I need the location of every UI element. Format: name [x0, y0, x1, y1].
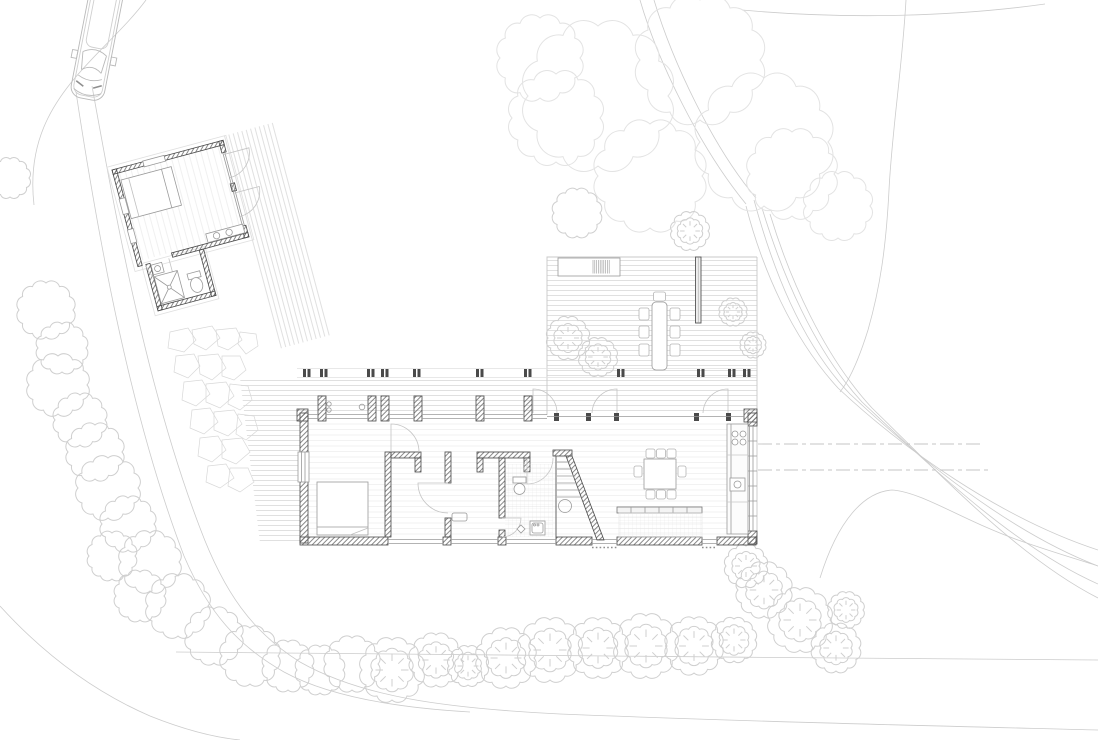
car-headlights	[75, 81, 101, 90]
planter-bench	[558, 258, 620, 276]
dining-chair	[678, 466, 686, 477]
utility-dashed-lines	[758, 444, 988, 470]
cooktop-burner	[732, 431, 738, 437]
car-top-view	[64, 0, 132, 103]
contour-line	[770, 214, 1098, 598]
car-mirror-left	[71, 49, 78, 58]
dining-chair	[657, 449, 666, 458]
north-windows	[308, 415, 547, 419]
contour-line	[754, 200, 1098, 566]
toilet-tank	[513, 477, 526, 483]
window-seat	[298, 452, 309, 482]
site-plan-page	[0, 0, 1098, 740]
car-windshield	[79, 48, 107, 74]
site-plan-drawing	[0, 0, 1098, 740]
west-wall	[298, 413, 309, 543]
bath-tile-floor	[505, 464, 553, 537]
contour-line-top	[742, 4, 1045, 16]
contour-line	[746, 206, 1098, 550]
dining-chair	[646, 449, 655, 458]
cooktop-burner	[740, 431, 746, 437]
dining-chair	[657, 490, 666, 499]
contour-line-vertical	[840, 0, 906, 392]
dining-chair	[634, 466, 642, 477]
privacy-wall	[696, 257, 702, 323]
east-wall	[748, 413, 757, 544]
car-roof	[85, 0, 118, 50]
cooktop-burner	[732, 439, 738, 445]
car-mirror-right	[110, 57, 117, 66]
bathroom	[505, 464, 553, 537]
toilet-bowl	[514, 484, 525, 495]
footpath-north-2	[654, 0, 756, 198]
dining-chair	[667, 449, 676, 458]
contour-line	[762, 208, 1098, 584]
bottom-tree-row	[360, 544, 865, 702]
footpath-north	[640, 0, 746, 204]
kitchen-floor-tiles	[619, 513, 702, 537]
dining-table	[644, 459, 676, 489]
cooktop-burner	[740, 439, 746, 445]
south-wall	[300, 537, 756, 548]
kitchen-island	[617, 507, 702, 537]
guest-house	[107, 123, 330, 380]
kitchen-counter-east	[727, 424, 748, 534]
car-hood-line	[78, 75, 102, 83]
bedroom-bed	[317, 482, 368, 535]
contour-line-bottom	[176, 652, 1098, 660]
dining-chair	[667, 490, 676, 499]
dining-chair	[646, 490, 655, 499]
